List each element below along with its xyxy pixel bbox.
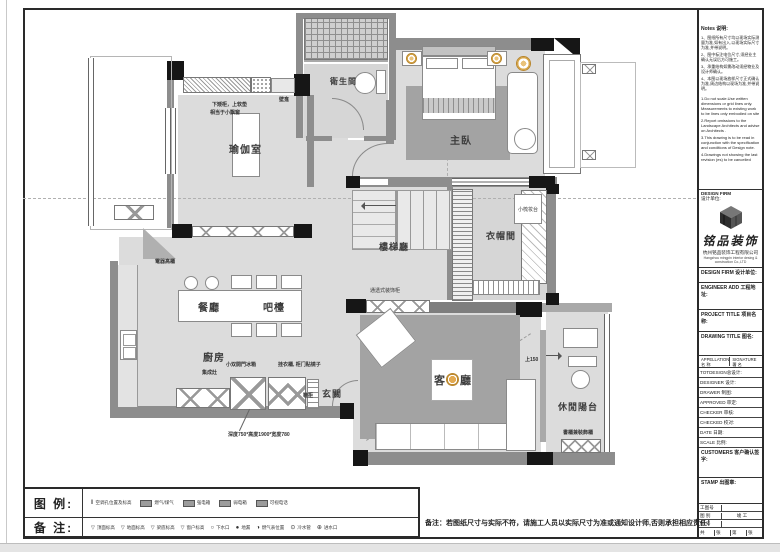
column	[294, 74, 310, 96]
legend-item-label: 进水口	[324, 525, 338, 531]
cell-label: 第	[731, 530, 747, 536]
terrace-window	[88, 58, 94, 226]
note-en: 2.Report omissions to the Landscape Arch…	[701, 118, 760, 133]
elevation-icon: ▽	[91, 525, 95, 531]
room-label-foyer: 玄關	[322, 387, 342, 400]
annotation-display-cabinet: 通透式装饰柜	[370, 287, 400, 294]
titleblock-row: DRAWER 制图:	[699, 388, 762, 398]
strong-current-box-icon	[183, 500, 195, 507]
table-row: 图 号	[699, 520, 762, 528]
row-label: DESIGNER 设计:	[699, 380, 737, 386]
stool	[205, 276, 219, 290]
legend-item-label: 地面标高	[127, 525, 145, 531]
legend-item: 强电箱	[183, 500, 211, 507]
chair	[231, 275, 252, 289]
table-row: 共 张 第 张	[699, 528, 762, 537]
blanket	[423, 98, 495, 113]
weak-current-box-icon	[219, 500, 231, 507]
balcony-bench	[563, 328, 598, 348]
drain-open-icon: ○	[210, 525, 214, 531]
yoga-south-window-band	[192, 226, 294, 237]
room-label-balcony: 休閒陽台	[558, 400, 598, 413]
headboard	[422, 46, 496, 56]
table-row: 工图号	[699, 504, 762, 512]
window-seat-hatch	[183, 77, 251, 93]
pillow	[426, 58, 458, 69]
titleblock: Notes 说明: 1、图纸所有尺寸均以现场实际测量为准,如有出入,以现场实际尺…	[699, 10, 762, 537]
design-firm-row: DESIGN FIRM 设计单位:	[699, 268, 762, 283]
column	[546, 184, 559, 194]
row-label: APPROVED 审定:	[699, 400, 738, 406]
ceiling-lamp-icon	[406, 53, 417, 64]
note-en: 3.This drawing is to be read in conjunct…	[701, 135, 760, 150]
company-logo-cube	[718, 204, 744, 230]
kitchen-sink-basin	[123, 334, 136, 346]
cold-pipe-icon: ⊙	[290, 524, 295, 531]
titleblock-row: DESIGNER 设计:	[699, 378, 762, 388]
cell-label: 张	[747, 530, 762, 536]
legend-item-label: 燃气表位置	[262, 525, 285, 531]
design-firm-cn: 设计单位:	[701, 196, 760, 202]
room-label-cloak: 衣帽間	[486, 229, 516, 242]
elevation-icon: ▽	[121, 525, 125, 531]
closet-drawers	[472, 280, 540, 295]
project-title-row: PROJECT TITLE 项目名称:	[699, 310, 762, 332]
water-inlet-icon: ⊕	[317, 524, 322, 531]
cell-value: 竣 工	[722, 513, 762, 519]
annotation-window-seat-2: 相当于小飘窗	[210, 109, 240, 116]
legend-item-label: 冷水管	[297, 525, 311, 531]
row-label: CHECKER 审核:	[699, 410, 735, 416]
row-label: TOTDESIGN总设计:	[699, 370, 743, 376]
drawing-title-row: DRAWING TITLE 图名:	[699, 332, 762, 356]
annotation-elec-cabinet: 電器高櫃	[155, 258, 175, 265]
titleblock-row: CHECKED 校对:	[699, 418, 762, 428]
gas-meter-icon: ◑	[256, 525, 260, 531]
bottom-remark: 备注：若图纸尺寸与实际不符，请施工人员以实际尺寸为准或通知设计师,否则承担相应责…	[425, 518, 714, 528]
room-label-master: 主臥	[450, 132, 472, 147]
row-label: SCALE 比例:	[699, 440, 728, 446]
tv-wall	[430, 302, 518, 313]
chair	[281, 323, 302, 337]
room-label-stair: 樓梯廳	[379, 240, 409, 253]
legend-item: ▽顶面标高	[91, 525, 115, 531]
legend-item: ▽梁底标高	[151, 525, 175, 531]
chair	[256, 275, 277, 289]
annotation-fridge: 小双開門冰箱	[226, 361, 256, 368]
ac-unit	[114, 205, 154, 220]
titleblock-row: DATE 日期:	[699, 428, 762, 438]
legend-row-remarks: 备 注: ▽顶面标高 ▽地面标高 ▽梁底标高 ▽窗户标高 ○下水口 ●地漏 ◑燃…	[25, 518, 418, 537]
annotation-dresser: 小梳妆台	[518, 206, 538, 213]
cell-label: 共	[699, 530, 715, 536]
entry-wardrobe	[268, 377, 306, 410]
sofa-seat	[375, 423, 509, 450]
signature-col: SIGNATURE 署 名	[730, 357, 760, 366]
column	[546, 293, 559, 305]
annotation-size-note: 深度750*高度1900*宽度780	[228, 431, 290, 438]
customers-row: CUSTOMERS 客户确认签字:	[699, 448, 762, 478]
legend-item: ⊕进水口	[317, 524, 338, 531]
appellation-cn: 名 称	[701, 362, 729, 368]
room-label-kitchen: 廚房	[203, 349, 225, 364]
legend-item: ●地漏	[236, 525, 251, 531]
column	[527, 452, 553, 465]
wall	[307, 95, 314, 187]
room-label-bar: 吧檯	[263, 299, 285, 314]
floor-drain-icon: ●	[236, 525, 240, 531]
drawing-number-table: 工图号 图 别竣 工 图 号 共 张 第 张	[699, 504, 762, 537]
double-line-icon: ‖	[91, 500, 93, 506]
legend-item: 燃气/煤气	[140, 500, 173, 507]
sliding-door	[452, 178, 530, 186]
stool	[184, 276, 198, 290]
cell-label: 图 号	[699, 521, 722, 527]
annotation-shoe-cabinet: 鞋柜	[303, 392, 313, 399]
annotation-wardrobe: 挂衣櫃, 柜门贴镜子	[278, 361, 321, 368]
wall	[547, 192, 556, 296]
south-wall	[355, 452, 615, 465]
annotation-bookcase: 書櫃兼裝飾櫃	[563, 429, 593, 436]
legend-item-label: 强电箱	[197, 500, 211, 506]
column	[172, 224, 192, 238]
column	[346, 299, 366, 313]
legend-item-label: 弱电箱	[233, 500, 247, 506]
legend-item: ▽窗户标高	[181, 525, 205, 531]
stove-counter	[176, 388, 230, 408]
wall-niche	[271, 78, 295, 93]
living-ceiling-lamp-icon	[446, 373, 459, 386]
signature-cn: 署 名	[732, 362, 760, 368]
shower-tiles	[304, 18, 388, 60]
legend-item-label: 空调孔位置及标高	[95, 500, 131, 506]
toilet-bowl	[354, 72, 376, 94]
annotation-window-seat-1: 下矮柜，上软垫	[212, 101, 247, 108]
balcony-shelf	[568, 356, 597, 367]
annotation-niche: 壁龛	[279, 96, 289, 103]
terrace-outline	[90, 56, 172, 230]
cell-label: 工图号	[699, 505, 722, 511]
legend-row-symbols: 图 例: ‖空调孔位置及标高 燃气/煤气 强电箱 弱电箱 可视电话	[25, 489, 418, 518]
toilet-tank	[376, 70, 386, 94]
video-phone-box-icon	[256, 500, 268, 507]
table-row: 图 别竣 工	[699, 512, 762, 520]
note-en: 1.Do not scale.Use written dimensions or…	[701, 96, 760, 116]
appellation-header: APPELLATION 名 称 SIGNATURE 署 名	[699, 356, 762, 368]
balcony-table	[571, 370, 590, 389]
room-label-bath: 衛生間	[330, 76, 357, 87]
legend-items-row2: ▽顶面标高 ▽地面标高 ▽梁底标高 ▽窗户标高 ○下水口 ●地漏 ◑燃气表位置 …	[83, 518, 418, 537]
bay-window-inner	[549, 60, 575, 168]
fridge	[230, 377, 266, 410]
titleblock-row: CHECKER 审核:	[699, 408, 762, 418]
cell-label: 图 别	[699, 513, 722, 519]
kitchen-sink-basin	[123, 347, 136, 359]
side-table	[514, 128, 536, 150]
titleblock-row: SCALE 比例:	[699, 438, 762, 448]
titleblock-row: APPROVED 审定:	[699, 398, 762, 408]
column	[353, 450, 368, 466]
gas-box-icon	[140, 500, 152, 507]
mullion	[582, 150, 596, 160]
legend-item: ○下水口	[210, 525, 229, 531]
titleblock-row: TOTDESIGN总设计:	[699, 368, 762, 378]
note-en: 4.Drawings not showing the last revision…	[701, 152, 760, 162]
chair	[256, 323, 277, 337]
up150-arrow-icon	[558, 352, 566, 360]
ceiling-lamp-icon	[491, 53, 502, 64]
legend-item-label: 顶面标高	[97, 525, 115, 531]
notes-section: Notes 说明: 1、图纸所有尺寸均以现场实际测量为准,如有出入,以现场实际尺…	[699, 10, 762, 190]
chair	[281, 275, 302, 289]
wall	[386, 100, 394, 144]
legend-caption: 图 例:	[25, 489, 83, 517]
window-seat-cushion	[251, 77, 271, 93]
design-firm-logo-section: DESIGN FIRM 设计单位: 铭品装饰 杭州铭品装饰工程有限公司 Hang…	[699, 190, 762, 268]
ceiling-lamp-icon	[516, 56, 531, 71]
balcony-divider-wall	[540, 330, 546, 442]
legend-item: 弱电箱	[219, 500, 247, 507]
room-label-yoga: 瑜伽室	[229, 141, 262, 156]
legend-item-label: 梁底标高	[157, 525, 175, 531]
room-label-dining: 餐廳	[198, 299, 220, 314]
annotation-stove: 集成灶	[202, 369, 217, 376]
legend-item-label: 燃气/煤气	[154, 500, 173, 506]
stair-arrow-icon	[357, 202, 365, 210]
column	[531, 38, 554, 51]
west-wall	[110, 261, 118, 408]
stair-direction-line	[362, 205, 396, 206]
floorplan-sheet: { "page": { "legend_caption": "图 例:", "r…	[0, 0, 780, 552]
legend-items-row1: ‖空调孔位置及标高 燃气/煤气 强电箱 弱电箱 可视电话	[83, 489, 418, 517]
remark-caption: 备 注:	[25, 518, 83, 537]
legend-item: ‖空调孔位置及标高	[91, 500, 131, 506]
brand-name: 铭品装饰	[701, 232, 760, 249]
engineer-address-row: ENGINEER ADD 工程地址:	[699, 283, 762, 310]
legend-item-label: 地漏	[241, 525, 250, 531]
mullion	[582, 64, 596, 74]
page-left-edge-line	[6, 0, 7, 543]
stair-flight	[452, 189, 473, 301]
stamp-row: STAMP 出图章:	[699, 478, 762, 504]
display-cabinet	[366, 300, 430, 313]
row-label: CHECKED 校对:	[699, 420, 735, 426]
sofa-right	[506, 379, 536, 451]
chair	[231, 323, 252, 337]
balcony-railing	[604, 314, 610, 454]
company-name-en: Hangzhou mingpin interior desing & const…	[701, 256, 760, 264]
page-bottom-strip	[0, 543, 780, 552]
legend-item: ▽地面标高	[121, 525, 145, 531]
elevation-icon: ▽	[151, 525, 155, 531]
room-label-living-left: 客	[434, 372, 446, 388]
note-cn: 1、图纸所有尺寸均以现场实际测量为准,如有出入,以现场实际尺寸为准,并带说明。	[701, 35, 760, 50]
legend-item-label: 下水口	[216, 525, 230, 531]
legend-item-label: 窗户标高	[186, 525, 204, 531]
elevation-icon: ▽	[181, 525, 185, 531]
appellation-col: APPELLATION 名 称	[701, 357, 730, 366]
legend-block: 图 例: ‖空调孔位置及标高 燃气/煤气 强电箱 弱电箱 可视电话 备 注: ▽…	[23, 487, 420, 538]
legend-item: ⊙冷水管	[290, 524, 311, 531]
row-label: DATE 日期:	[699, 430, 725, 436]
note-cn: 4、本图以现场放样尺寸正式确认为准,周边结构以现场为准,并带说明。	[701, 76, 760, 91]
room-label-living-right: 廳	[460, 372, 472, 388]
row-label: DRAWER 制图:	[699, 390, 733, 396]
column	[294, 224, 312, 238]
legend-item-label: 可视电话	[270, 500, 288, 506]
legend-item: 可视电话	[256, 500, 288, 507]
note-cn: 2、图中标注电位尺寸,须经业主确认无误后方可施工。	[701, 52, 760, 62]
column	[346, 176, 360, 188]
cell-label: 张	[715, 530, 731, 536]
notes-title: Notes 说明:	[701, 25, 760, 32]
annotation-up150: 上150	[525, 356, 538, 363]
legend-item: ◑燃气表位置	[256, 525, 284, 531]
bookcase-cabinet	[561, 439, 601, 453]
note-cn: 3、承重结构如需改动须经物业及设计师确认。	[701, 64, 760, 74]
